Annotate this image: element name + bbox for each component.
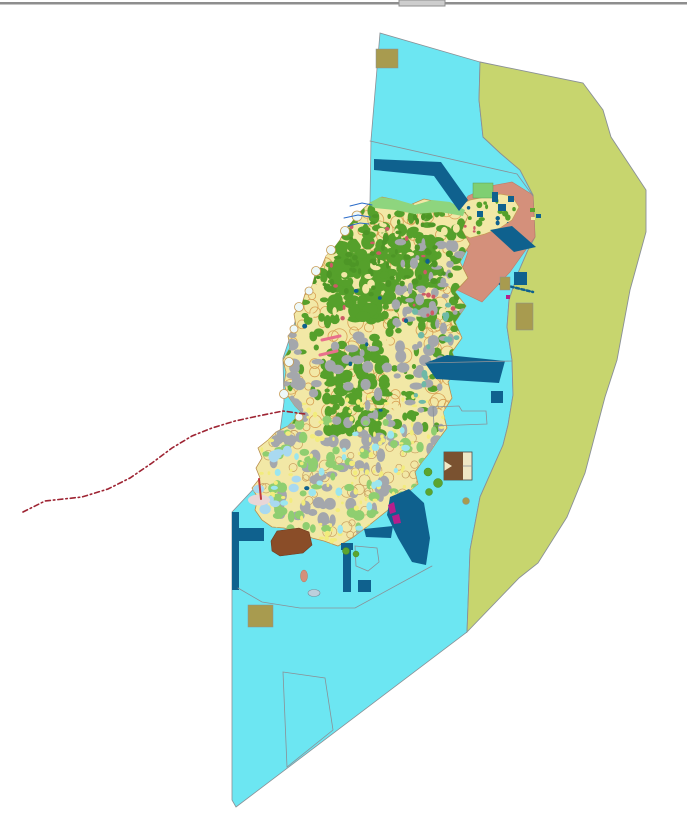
- navy-square-offshore: [514, 272, 527, 285]
- window-divider-line: [0, 2, 687, 5]
- pale-flat-west: [248, 495, 270, 506]
- teal-square-ne: [492, 192, 498, 202]
- salmon-islet-south: [301, 570, 308, 582]
- window-divider-handle[interactable]: [399, 0, 445, 6]
- navy-pier-west-arm: [239, 528, 264, 541]
- navy-square-east: [491, 391, 503, 403]
- map-canvas[interactable]: [0, 0, 687, 821]
- khaki-block-south: [248, 605, 273, 627]
- magenta-dot-east: [506, 295, 510, 299]
- map-viewport: [0, 0, 687, 821]
- khaki-block-east: [516, 303, 533, 330]
- navy-pier-west: [232, 512, 239, 590]
- green-field-ne: [473, 183, 493, 198]
- navy-square-south: [358, 580, 371, 592]
- khaki-block-north: [376, 49, 398, 68]
- khaki-dot-southeast: [463, 498, 470, 505]
- khaki-block-east-small: [500, 277, 510, 290]
- gray-islet-south: [308, 590, 320, 597]
